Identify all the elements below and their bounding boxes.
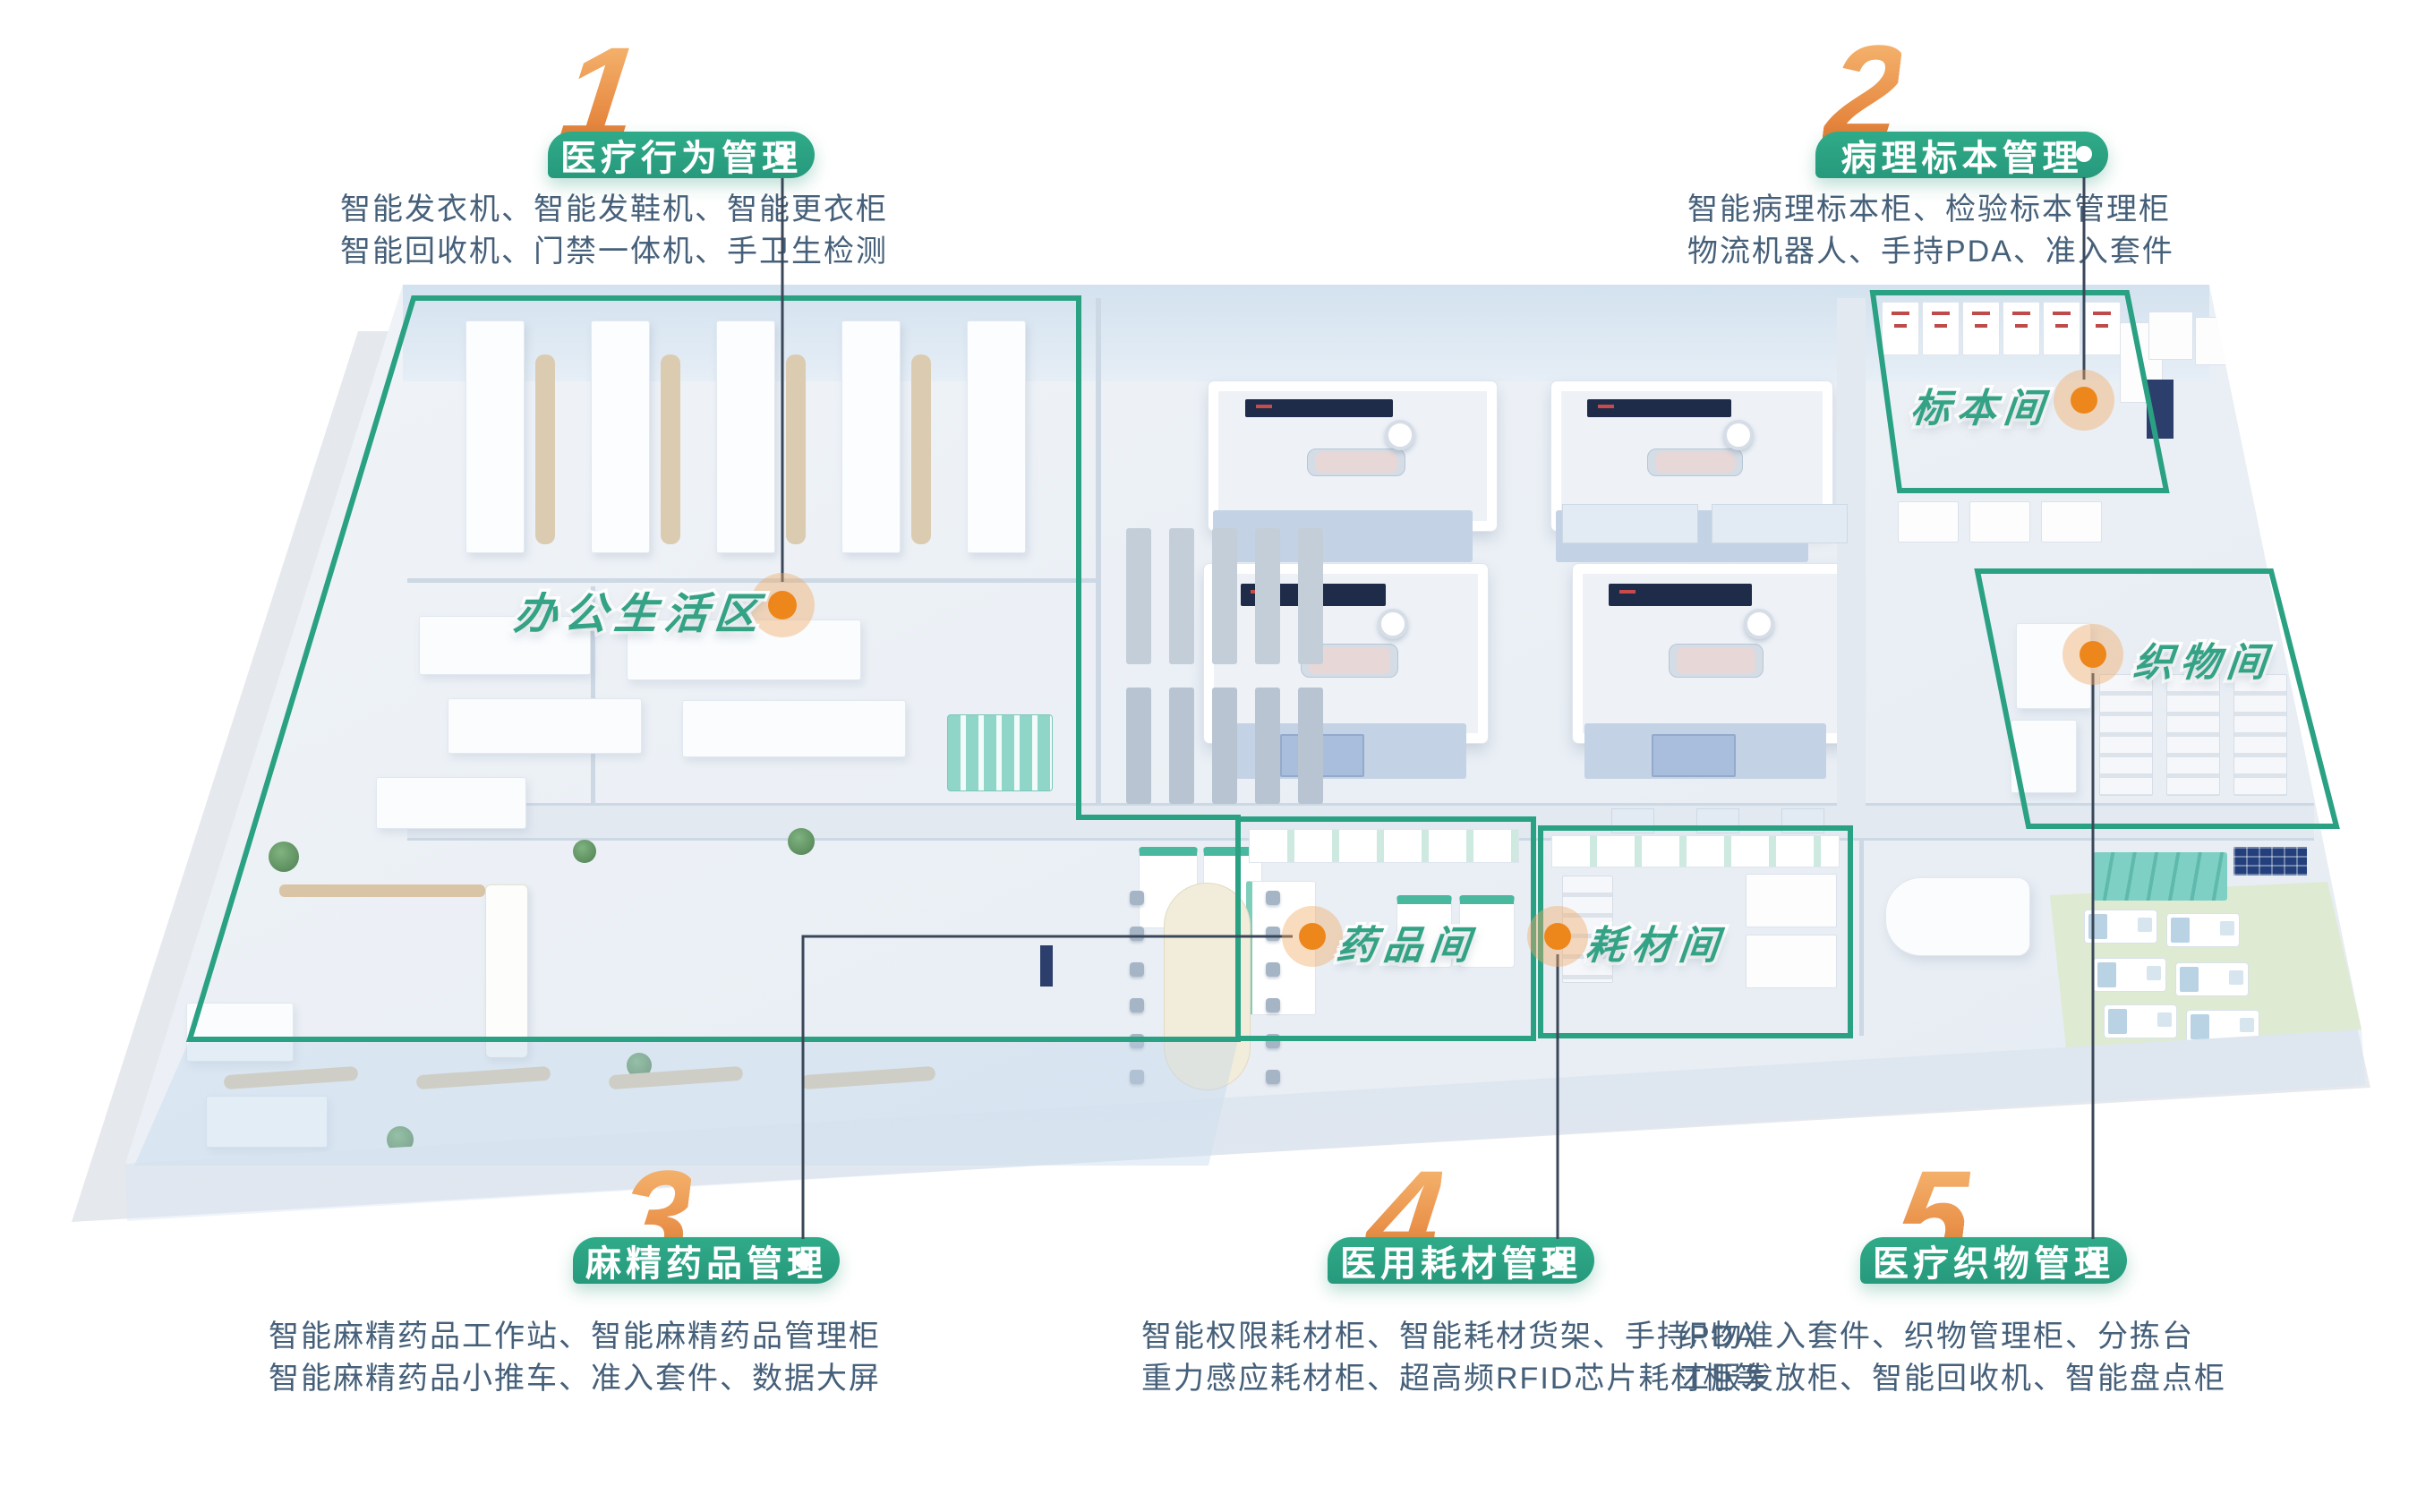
hospital-bed	[2084, 910, 2157, 944]
section-tab-3: 麻精药品管理	[573, 1237, 840, 1284]
desc-line: 智能权限耗材柜、智能耗材货架、手持PDA	[1141, 1316, 1643, 1358]
bench	[911, 355, 931, 544]
hospital-bed	[2093, 958, 2166, 992]
cabinet-unit	[2041, 501, 2102, 542]
monitor-trace	[1619, 590, 1636, 594]
specimen-cabinet	[1922, 302, 1960, 355]
info-screen	[2233, 847, 2307, 876]
cabinet-unit	[2195, 317, 2240, 365]
fabric-locker-wall	[2093, 852, 2227, 901]
chair	[1130, 927, 1144, 941]
operating-room-1	[1208, 381, 1497, 531]
storage-rack	[2099, 674, 2153, 796]
shower-stall	[1169, 528, 1194, 664]
section-title-1: 医疗行为管理	[560, 129, 802, 181]
desc-line: 智能麻精药品工作站、智能麻精药品管理柜	[269, 1316, 736, 1358]
wall-screen	[1040, 945, 1053, 987]
storage-rack	[2166, 674, 2220, 796]
section-desc-2: 智能病理标本柜、检验标本管理柜 物流机器人、手持PDA、准入套件	[1687, 189, 2155, 273]
chair	[1266, 1070, 1280, 1084]
desc-line: 智能回收机、门禁一体机、手卫生检测	[340, 231, 807, 273]
counter-row	[279, 884, 485, 897]
operating-room-3	[1204, 564, 1488, 743]
specimen-cabinet	[2003, 302, 2040, 355]
shower-stall	[1126, 528, 1151, 664]
monitor-trace	[1256, 405, 1272, 408]
cabinet-row	[1551, 835, 1840, 867]
desc-line: 物流机器人、手持PDA、准入套件	[1687, 231, 2155, 273]
surgical-light	[1378, 609, 1408, 639]
corridor	[1837, 298, 1866, 808]
monitor-trace	[1598, 405, 1614, 408]
chair	[1266, 927, 1280, 941]
chair	[1266, 998, 1280, 1012]
hospital-bed	[2175, 962, 2249, 996]
nurse-counter	[1885, 877, 2030, 956]
chair	[1130, 891, 1144, 905]
section-tab-5: 医疗织物管理	[1860, 1237, 2127, 1284]
desc-line: 重力感应耗材柜、超高频RFID芯片耗材柜等	[1141, 1358, 1643, 1400]
bench	[535, 355, 555, 544]
room-tag-specimen: 标本间	[1909, 376, 2054, 433]
shower-stall	[1212, 688, 1237, 804]
room-tag-consumable: 耗材间	[1584, 913, 1729, 970]
shower-stall	[1126, 688, 1151, 804]
section-desc-4: 智能权限耗材柜、智能耗材货架、手持PDA 重力感应耗材柜、超高频RFID芯片耗材…	[1141, 1316, 1643, 1400]
wall-screen	[2147, 380, 2174, 439]
operating-table	[1669, 644, 1764, 678]
specimen-cabinet	[2083, 302, 2121, 355]
operating-table	[1307, 448, 1405, 476]
door	[1611, 808, 1654, 833]
shower-stall	[1255, 528, 1280, 664]
storage-rack	[2233, 674, 2287, 796]
locker-bank	[448, 698, 642, 754]
section-desc-1: 智能发衣机、智能发鞋机、智能更衣柜 智能回收机、门禁一体机、手卫生检测	[340, 189, 807, 273]
operating-table	[1647, 448, 1743, 476]
cabinet-block	[591, 320, 650, 553]
locker-bank	[2011, 720, 2077, 793]
chair	[1266, 962, 1280, 977]
cabinet-row	[1249, 829, 1519, 863]
operating-room-4	[1573, 564, 1852, 743]
interior-wall	[1096, 298, 1101, 806]
or-front-wall	[1213, 510, 1473, 562]
locker-bank	[376, 777, 526, 829]
surgical-light	[1385, 420, 1415, 450]
desc-line: 织物准入套件、织物管理柜、分拣台	[1678, 1316, 2180, 1358]
wall-monitor	[1245, 399, 1393, 417]
cabinet-unit	[1746, 935, 1837, 988]
cabinet-block	[841, 320, 901, 553]
specimen-cabinet	[1962, 302, 2000, 355]
door	[1696, 808, 1739, 833]
section-tab-2: 病理标本管理	[1815, 132, 2108, 178]
desc-line: 智能麻精药品小推车、准入套件、数据大屏	[269, 1358, 736, 1400]
cabinet-unit	[1969, 501, 2030, 542]
bench	[786, 355, 806, 544]
door	[1712, 504, 1848, 543]
hospital-bed	[2104, 1004, 2177, 1038]
wall-monitor	[1609, 584, 1752, 606]
section-title-5: 医疗织物管理	[1873, 1234, 2114, 1286]
cabinet-unit	[2148, 312, 2193, 360]
section-desc-3: 智能麻精药品工作站、智能麻精药品管理柜 智能麻精药品小推车、准入套件、数据大屏	[269, 1316, 736, 1400]
specimen-cabinet	[2043, 302, 2080, 355]
interior-wall	[1859, 840, 1864, 1036]
cabinet-unit	[2242, 322, 2286, 371]
specimen-cabinet	[1882, 302, 1919, 355]
chair	[1266, 1034, 1280, 1048]
locker-bank	[682, 700, 906, 757]
plant	[269, 841, 299, 872]
section-title-4: 医用耗材管理	[1340, 1234, 1582, 1286]
shower-stall	[1255, 688, 1280, 804]
surgical-light	[1744, 609, 1774, 639]
desc-line: 智能病理标本柜、检验标本管理柜	[1687, 189, 2155, 231]
reception-desk	[485, 884, 528, 1058]
section-title-2: 病理标本管理	[1841, 129, 2083, 181]
desc-line: 智能发衣机、智能发鞋机、智能更衣柜	[340, 189, 807, 231]
cabinet-block	[465, 320, 525, 553]
cabinet-block	[716, 320, 775, 553]
section-tab-4: 医用耗材管理	[1328, 1237, 1594, 1284]
cabinet-unit	[1898, 501, 1959, 542]
plant	[788, 828, 815, 855]
shower-stall	[1298, 688, 1323, 804]
room-tag-medicine: 药品间	[1335, 913, 1481, 970]
chair	[1266, 891, 1280, 905]
cabinet-unit	[1746, 874, 1837, 927]
section-tab-1: 医疗行为管理	[548, 132, 815, 178]
shower-stall	[1298, 528, 1323, 664]
chair	[1130, 998, 1144, 1012]
bench	[661, 355, 680, 544]
room-tag-office: 办公生活区	[511, 578, 768, 641]
hospital-bed	[2166, 913, 2240, 947]
door	[1562, 504, 1698, 543]
plant	[573, 840, 596, 863]
section-desc-5: 织物准入套件、织物管理柜、分拣台 工服发放柜、智能回收机、智能盘点柜	[1678, 1316, 2180, 1400]
chair	[1130, 962, 1144, 977]
section-title-3: 麻精药品管理	[585, 1234, 827, 1286]
shower-stall	[1212, 528, 1237, 664]
door	[1781, 808, 1824, 833]
locker-bank	[2016, 623, 2091, 709]
surgical-light	[1723, 420, 1754, 450]
shower-stall	[1169, 688, 1194, 804]
interior-wall	[407, 803, 2314, 806]
or-sliding-door	[1652, 734, 1736, 777]
wall-monitor	[1587, 399, 1731, 417]
room-tag-fabric: 织物间	[2131, 630, 2277, 688]
access-gate	[947, 714, 1053, 791]
medicine-cabinet	[1246, 881, 1316, 1015]
cabinet-block	[967, 320, 1026, 553]
desc-line: 工服发放柜、智能回收机、智能盘点柜	[1678, 1358, 2180, 1400]
floorplan-poster: 1 医疗行为管理 智能发衣机、智能发鞋机、智能更衣柜 智能回收机、门禁一体机、手…	[0, 0, 2417, 1512]
